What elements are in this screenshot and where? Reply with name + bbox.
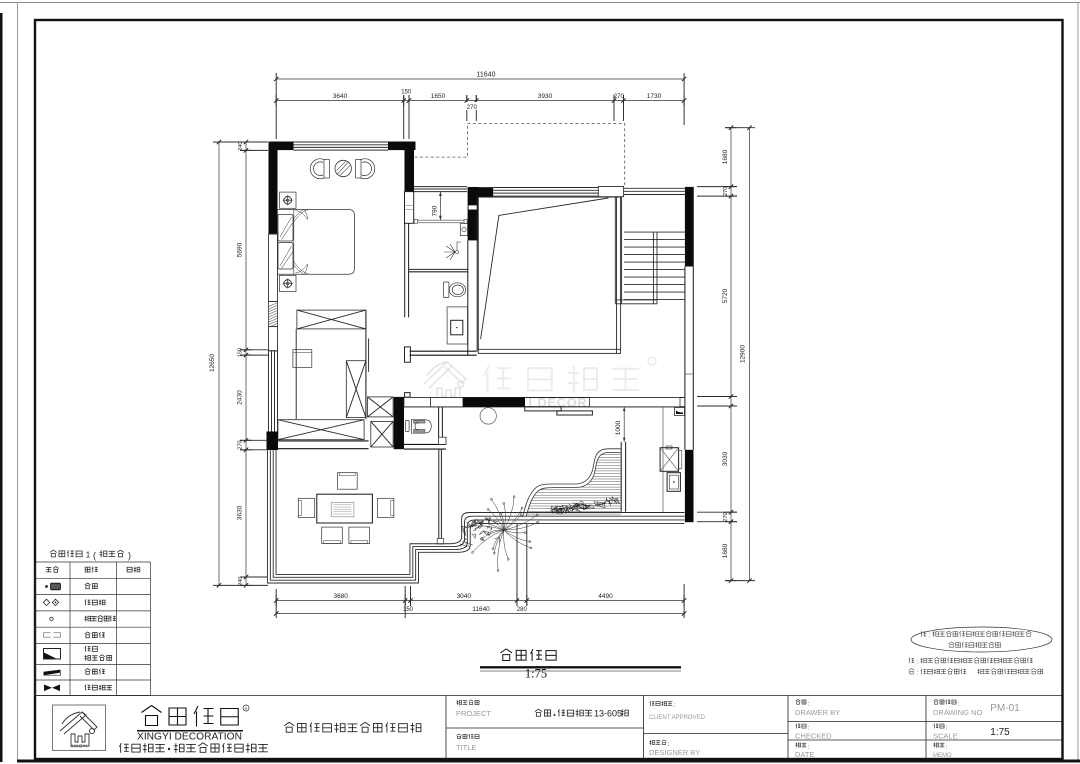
svg-text:240: 240: [238, 577, 244, 586]
svg-text:270: 270: [238, 440, 244, 449]
svg-text:DATE: DATE: [795, 750, 814, 759]
svg-text:SCALE: SCALE: [933, 732, 958, 741]
svg-text:CHECKED: CHECKED: [795, 732, 832, 741]
svg-text:PROJECT: PROJECT: [456, 709, 491, 718]
svg-text:I DECORA: I DECORA: [529, 396, 598, 410]
svg-text:5720: 5720: [722, 288, 729, 303]
svg-text:TITLE: TITLE: [456, 743, 476, 752]
svg-text:XINGYI: XINGYI: [70, 744, 87, 749]
svg-text:270: 270: [614, 94, 625, 100]
svg-text:13-605: 13-605: [594, 709, 622, 719]
svg-text:1000: 1000: [615, 420, 622, 435]
svg-text:3630: 3630: [237, 505, 244, 520]
svg-text:270: 270: [723, 187, 729, 196]
svg-text:1:75: 1:75: [990, 727, 1010, 738]
svg-text:270: 270: [723, 512, 729, 521]
svg-text:11640: 11640: [472, 606, 490, 613]
svg-text:1650: 1650: [431, 93, 446, 100]
svg-text:150: 150: [238, 348, 244, 357]
svg-text:12650: 12650: [209, 354, 216, 372]
svg-text:R: R: [245, 706, 248, 711]
svg-text:1680: 1680: [722, 149, 729, 164]
svg-text:12900: 12900: [740, 345, 747, 363]
svg-text:11640: 11640: [477, 72, 496, 79]
svg-text:2430: 2430: [237, 390, 244, 405]
svg-text:DRAWING NO: DRAWING NO: [933, 708, 982, 717]
svg-text:CLIENT APPROVED: CLIENT APPROVED: [649, 715, 706, 721]
svg-text:DESIGNER BY: DESIGNER BY: [649, 748, 700, 757]
svg-text:240: 240: [238, 142, 244, 151]
svg-text:): ): [128, 551, 131, 561]
svg-text:XINGYI DECORATION: XINGYI DECORATION: [137, 732, 242, 743]
svg-text:150: 150: [403, 607, 414, 613]
svg-text:5690: 5690: [237, 242, 244, 257]
svg-text:3640: 3640: [333, 93, 348, 100]
svg-text:(: (: [93, 551, 96, 561]
svg-text:280: 280: [517, 607, 528, 613]
svg-text:3680: 3680: [333, 593, 348, 600]
svg-text:1680: 1680: [722, 543, 729, 558]
svg-text:DRAWER BY: DRAWER BY: [795, 708, 840, 717]
svg-text:790: 790: [432, 205, 439, 216]
svg-text:PM-01: PM-01: [990, 703, 1020, 714]
svg-text:1: 1: [86, 551, 91, 560]
svg-text:1730: 1730: [647, 93, 662, 100]
svg-text:3030: 3030: [722, 451, 729, 466]
svg-text:MEMO: MEMO: [933, 753, 952, 759]
svg-text:150: 150: [401, 90, 412, 96]
svg-text:4490: 4490: [598, 593, 613, 600]
svg-text:3930: 3930: [538, 93, 553, 100]
svg-text:3040: 3040: [457, 593, 472, 600]
svg-text:270: 270: [467, 105, 478, 111]
svg-text:1:75: 1:75: [525, 667, 547, 681]
